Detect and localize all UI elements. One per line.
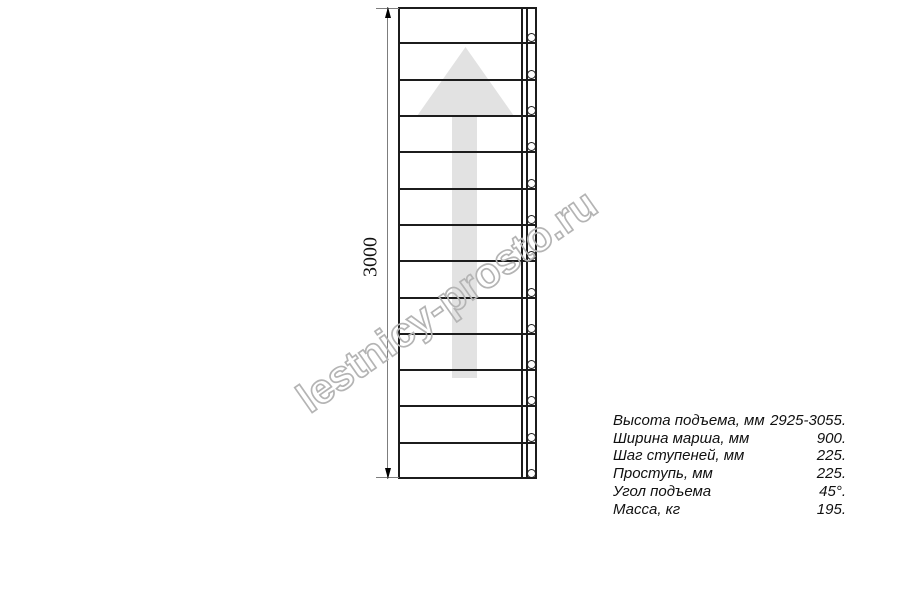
bolt-hole-circle xyxy=(527,360,536,369)
bolt-hole-circle xyxy=(527,288,536,297)
spec-value: 195. xyxy=(817,501,846,519)
spec-value: 225. xyxy=(817,465,846,483)
bolt-hole-circle xyxy=(527,396,536,405)
spec-label: Масса, кг xyxy=(613,501,680,519)
spec-row: Угол подъема45°. xyxy=(613,483,846,501)
spec-label: Угол подъема xyxy=(613,483,711,501)
bolt-hole-circle xyxy=(527,251,536,260)
tread-line xyxy=(398,151,537,153)
spec-row: Шаг ступеней, мм225. xyxy=(613,447,846,465)
tread-line xyxy=(398,369,537,371)
bolt-hole-circle xyxy=(527,142,536,151)
spec-value: 45°. xyxy=(819,483,846,501)
dimension-label: 3000 xyxy=(360,237,383,277)
tread-line xyxy=(398,115,537,117)
spec-row: Масса, кг195. xyxy=(613,501,846,519)
bolt-hole-circle xyxy=(527,469,536,478)
bolt-hole-circle xyxy=(527,106,536,115)
tread-line xyxy=(398,79,537,81)
tread-line xyxy=(398,442,537,444)
spec-label: Проступь, мм xyxy=(613,465,713,483)
bolt-hole-circle xyxy=(527,179,536,188)
tread-line xyxy=(398,42,537,44)
tread-line xyxy=(398,188,537,190)
bolt-hole-circle xyxy=(527,33,536,42)
tread-line xyxy=(398,333,537,335)
spec-row: Проступь, мм225. xyxy=(613,465,846,483)
bolt-hole-circle xyxy=(527,433,536,442)
tread-line xyxy=(398,297,537,299)
spec-value: 225. xyxy=(817,447,846,465)
bolt-hole-circle xyxy=(527,70,536,79)
dimension-arrowhead-bottom xyxy=(385,468,391,479)
spec-row: Высота подъема, мм2925-3055. xyxy=(613,412,846,430)
spec-row: Ширина марша, мм900. xyxy=(613,430,846,448)
spec-table: Высота подъема, мм2925-3055.Ширина марша… xyxy=(613,412,846,518)
dimension-line xyxy=(387,7,388,479)
spec-value: 2925-3055. xyxy=(770,412,846,430)
bolt-hole-circle xyxy=(527,215,536,224)
spec-value: 900. xyxy=(817,430,846,448)
spec-label: Ширина марша, мм xyxy=(613,430,749,448)
spec-label: Шаг ступеней, мм xyxy=(613,447,744,465)
ladder-plan-drawing: 3000 Высота подъема, мм2925-3055.Ширина … xyxy=(0,0,900,600)
dimension-arrowhead-top xyxy=(385,7,391,18)
tread-line xyxy=(398,224,537,226)
tread-line xyxy=(398,260,537,262)
tread-line xyxy=(398,405,537,407)
bolt-hole-circle xyxy=(527,324,536,333)
spec-label: Высота подъема, мм xyxy=(613,412,765,430)
